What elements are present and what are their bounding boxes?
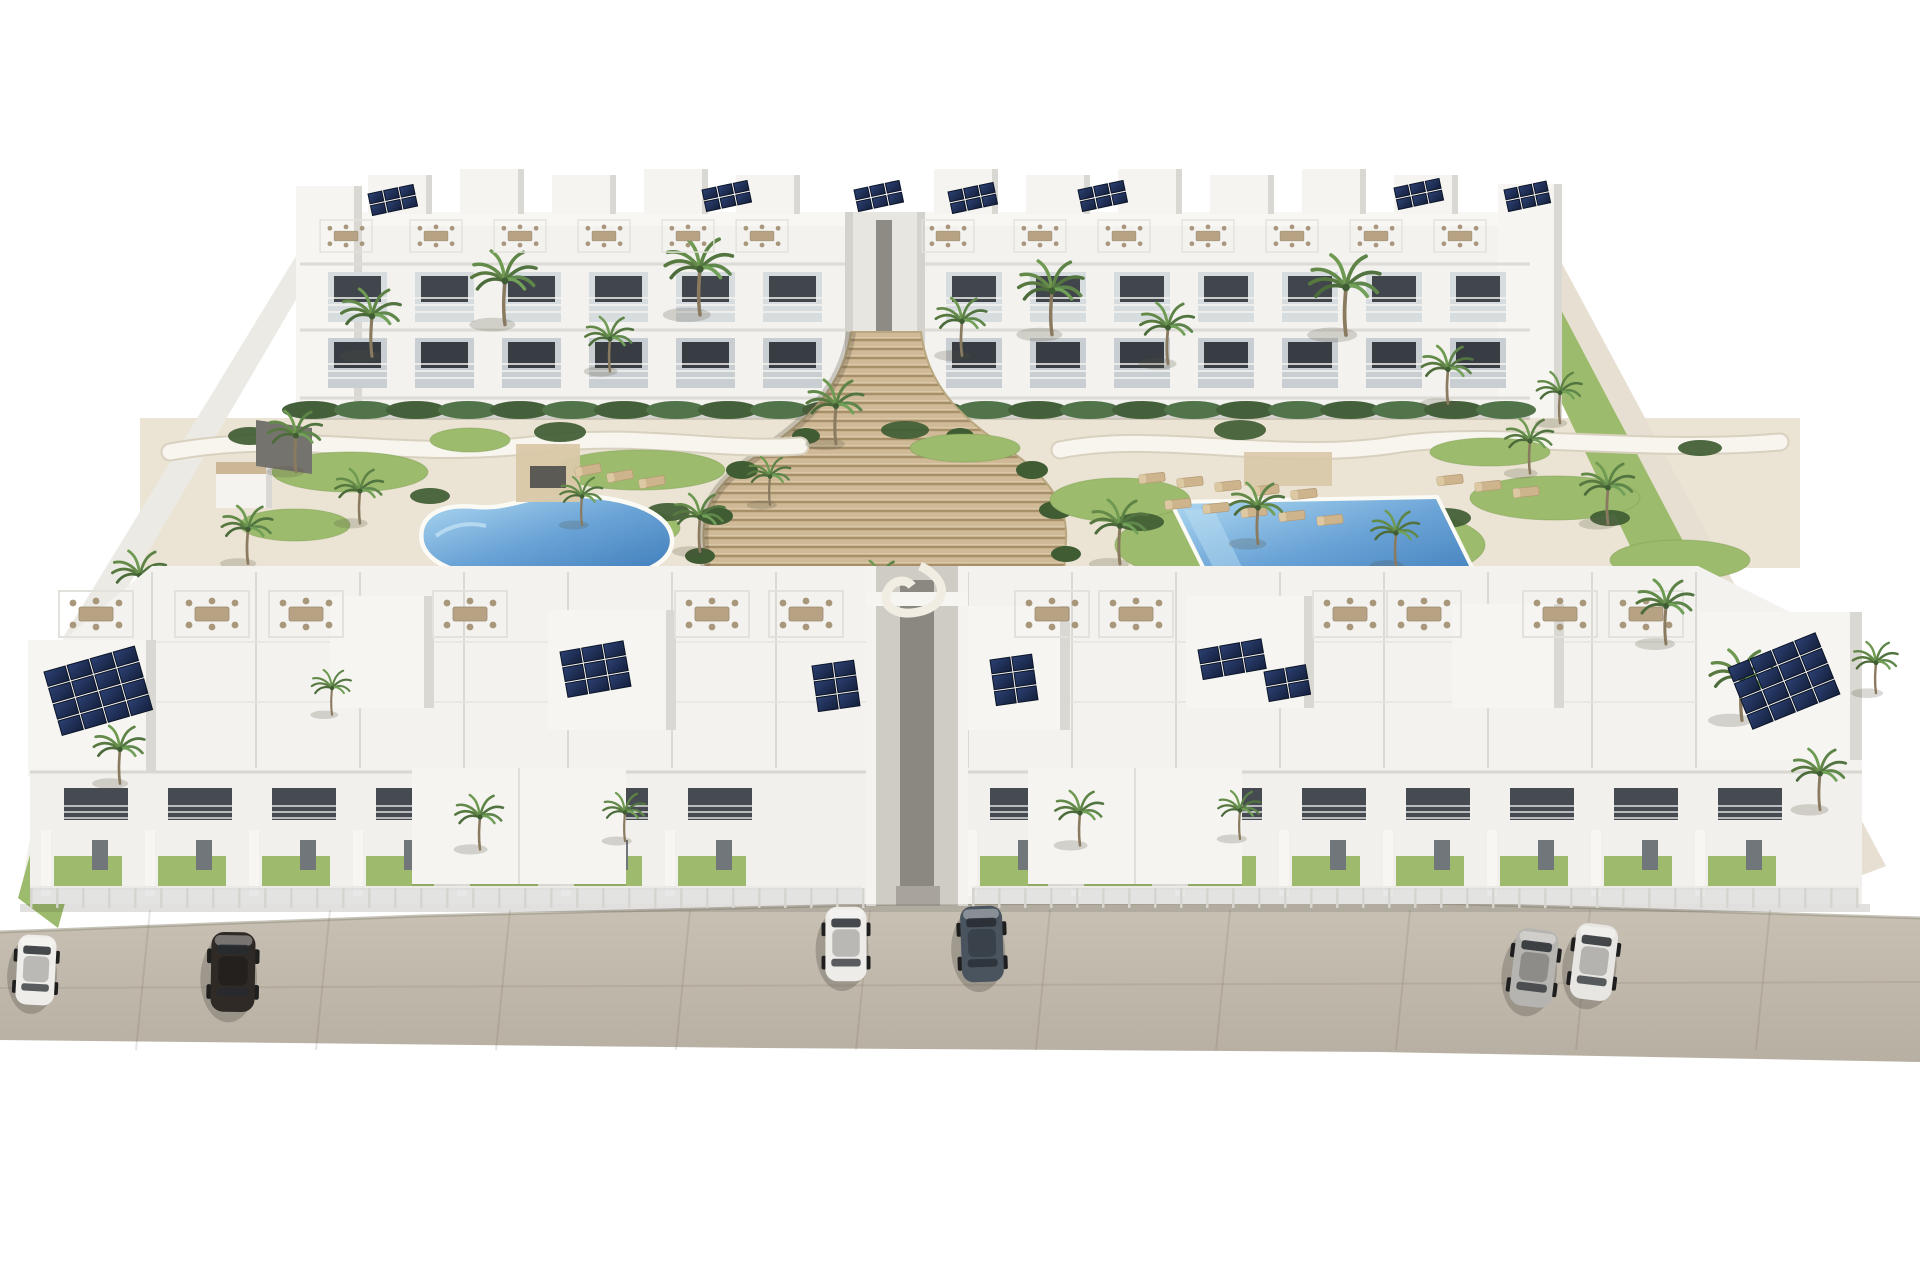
rear-roof-box — [552, 172, 616, 214]
rear-corner-tower-right — [1498, 184, 1562, 418]
rear-balcony — [946, 338, 1002, 388]
shrub — [1678, 440, 1722, 456]
rear-balcony — [328, 338, 387, 388]
front-central-gap — [866, 566, 968, 906]
hedge — [1216, 401, 1276, 419]
lawn-patch — [240, 509, 350, 541]
hedge — [1112, 401, 1172, 419]
fence-post — [1674, 888, 1677, 908]
fence-post — [1310, 888, 1313, 908]
fence-post — [290, 888, 293, 908]
hedge — [1164, 401, 1224, 419]
hedge — [646, 401, 706, 419]
rear-balcony — [415, 272, 474, 322]
rear-balcony — [1366, 338, 1422, 388]
rear-balcony — [763, 272, 822, 322]
bush — [726, 461, 758, 479]
lawn-patch — [430, 428, 510, 452]
fence-post — [628, 888, 631, 908]
fence-post — [1492, 888, 1495, 908]
fence-post — [784, 888, 787, 908]
rear-balcony — [763, 338, 822, 388]
architectural-rendering — [0, 0, 1920, 1280]
fence-post — [810, 888, 813, 908]
rear-balcony — [1282, 338, 1338, 388]
fence-post — [134, 888, 137, 908]
shrub — [410, 488, 450, 504]
fence-post — [108, 888, 111, 908]
fence-post — [1076, 888, 1079, 908]
fence-post — [1362, 888, 1365, 908]
fence-post — [1622, 888, 1625, 908]
rear-roof-box — [1302, 166, 1366, 214]
fence-post — [1128, 888, 1131, 908]
rear-roof-box — [644, 166, 708, 214]
hedge — [386, 401, 446, 419]
fence-post — [1856, 888, 1859, 908]
fence-post — [420, 888, 423, 908]
fence-post — [1180, 888, 1183, 908]
rear-roof-box — [1210, 172, 1274, 214]
fence-post — [1024, 888, 1027, 908]
rear-balcony — [1030, 338, 1086, 388]
fence-post — [1414, 888, 1417, 908]
fence-post — [1830, 888, 1833, 908]
fence-post — [836, 888, 839, 908]
fence-post — [602, 888, 605, 908]
fence-post — [342, 888, 345, 908]
hedge — [1268, 401, 1328, 419]
rear-balcony — [502, 338, 561, 388]
fence-post — [1752, 888, 1755, 908]
hedge — [334, 401, 394, 419]
fence-post — [1648, 888, 1651, 908]
rear-balcony — [415, 338, 474, 388]
fence-post — [1804, 888, 1807, 908]
fence-post — [1284, 888, 1287, 908]
shrub — [534, 422, 586, 442]
fence-post — [680, 888, 683, 908]
rear-balcony — [1450, 338, 1506, 388]
fence-post — [654, 888, 657, 908]
kidney-pool — [424, 498, 670, 576]
street-gate — [896, 886, 940, 906]
fence-post — [1258, 888, 1261, 908]
shrub — [881, 421, 929, 439]
fence-post — [186, 888, 189, 908]
fence-post — [1102, 888, 1105, 908]
right-pool-pergola — [1244, 452, 1332, 486]
fence-post — [1778, 888, 1781, 908]
hedge — [698, 401, 758, 419]
fence-post — [472, 888, 475, 908]
fence-post — [862, 888, 865, 908]
fence-post — [576, 888, 579, 908]
hedge — [542, 401, 602, 419]
utility-kiosk — [216, 462, 272, 508]
shrub — [1214, 420, 1266, 440]
fence-post — [82, 888, 85, 908]
rear-balcony — [1450, 272, 1506, 322]
rear-balcony — [1366, 272, 1422, 322]
fence-post — [1726, 888, 1729, 908]
fence-post — [1466, 888, 1469, 908]
hedge — [1060, 401, 1120, 419]
fence-post — [1206, 888, 1209, 908]
fence-post — [264, 888, 267, 908]
hedge — [1320, 401, 1380, 419]
rear-balcony — [1198, 338, 1254, 388]
fence-post — [1518, 888, 1521, 908]
fence-post — [498, 888, 501, 908]
fence-post — [1570, 888, 1573, 908]
fence-post — [238, 888, 241, 908]
hedge — [438, 401, 498, 419]
fence-post — [1154, 888, 1157, 908]
fence-post — [394, 888, 397, 908]
fence-post — [1388, 888, 1391, 908]
rear-balcony — [1198, 272, 1254, 322]
hedge — [490, 401, 550, 419]
rear-balcony — [1030, 272, 1086, 322]
fence-post — [316, 888, 319, 908]
fence-post — [1232, 888, 1235, 908]
fence-post — [972, 888, 975, 908]
lawn-patch — [910, 434, 1020, 462]
fence-post — [1050, 888, 1053, 908]
fence-post — [368, 888, 371, 908]
bush — [1051, 546, 1081, 562]
hedge — [594, 401, 654, 419]
hedge — [1008, 401, 1068, 419]
rear-balcony — [676, 338, 735, 388]
fence-post — [1596, 888, 1599, 908]
fence-post — [30, 888, 33, 908]
fence-post — [998, 888, 1001, 908]
hedge — [1476, 401, 1536, 419]
fence-post — [1700, 888, 1703, 908]
fence-post — [758, 888, 761, 908]
fence-post — [706, 888, 709, 908]
fence-post — [1336, 888, 1339, 908]
fence-post — [550, 888, 553, 908]
left-pool-pergola — [516, 444, 580, 502]
fence-post — [1440, 888, 1443, 908]
fence-post — [160, 888, 163, 908]
rear-balcony — [589, 338, 648, 388]
fence-post — [56, 888, 59, 908]
bush — [1016, 461, 1048, 479]
apartment-complex-render — [0, 0, 1920, 1280]
rear-roof-box — [460, 166, 524, 214]
fence-post — [212, 888, 215, 908]
fence-post — [1544, 888, 1547, 908]
rear-roof-box — [1118, 166, 1182, 214]
rear-balcony — [589, 272, 648, 322]
fence-post — [446, 888, 449, 908]
fence-post — [732, 888, 735, 908]
fence-post — [524, 888, 527, 908]
